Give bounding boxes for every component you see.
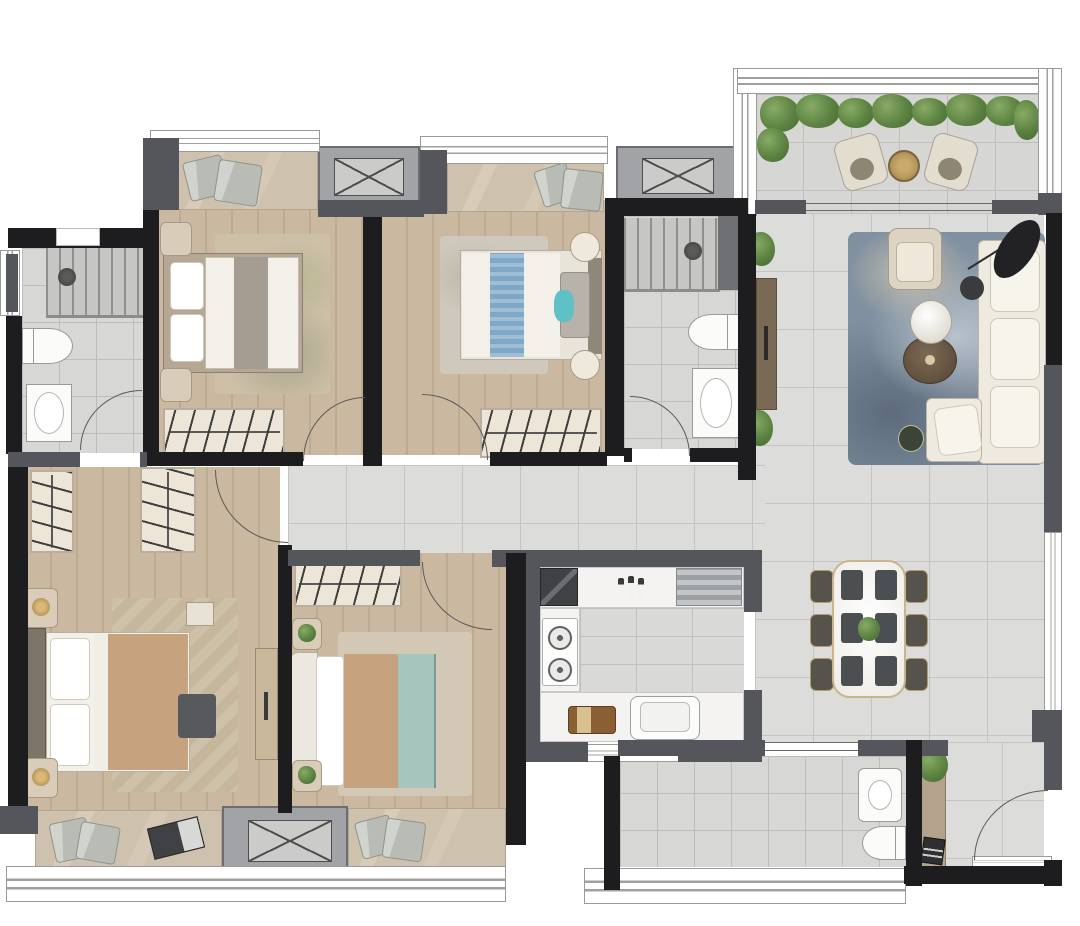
balcony-window-right [1038,68,1062,195]
kitchen-sink-basin [640,702,690,732]
kitchen-floor [580,608,744,692]
wall [1046,213,1062,365]
ac-platform-top-2-mark [642,158,714,194]
balcony-round-table [888,150,920,182]
nightstand-lamp [32,598,50,616]
wall [0,806,38,834]
vanity-bowl [868,780,892,810]
wall [143,210,159,456]
dining-centerpiece-plant [858,617,880,641]
wall [906,740,922,886]
ac-platform-top-1-mark [334,158,404,196]
master-bed-duvet [94,634,188,770]
bed-top-middle-blue-runner [490,253,524,357]
bottle [638,578,644,600]
wall [363,217,382,466]
window-cushion [560,168,604,212]
bed-bottom-duvet-teal [398,654,436,788]
wall [744,690,762,745]
wall [618,740,765,756]
wall [288,550,420,566]
master-wardrobe-b [140,467,196,553]
wall [526,550,540,745]
wall [604,756,620,890]
balcony-sliding-door [806,203,992,211]
round-nightstand-a [570,232,600,262]
master-bed-pillow-1 [50,638,90,700]
wall [6,316,22,454]
bed-top-left-pillow-2 [170,314,204,362]
shower-area-mid-bath [624,218,720,289]
master-bed-pillow-2 [50,704,90,766]
toilet-bowl [862,826,896,860]
balcony-window-top [737,68,1062,94]
balcony-plant [872,94,914,128]
sofa-cushion-2 [990,318,1040,380]
dining-chair [810,570,834,603]
ac-platform-bottom-mark [248,820,332,862]
burner-icon [548,658,572,682]
placemat [841,570,863,600]
bottle [618,578,624,600]
nightstand-lamp [32,768,50,786]
toilet-bowl [688,314,728,350]
bottle [628,576,634,600]
coffee-table-white [910,300,952,344]
bed-bottom-duvet-tan [344,654,398,788]
washbasin-bowl [34,392,64,434]
side-table [898,425,924,452]
dining-side-window [1044,532,1062,712]
bed-top-middle-teal-pillow [554,290,574,322]
placemat [875,570,897,600]
wall [690,448,748,462]
chaise-pillow [933,403,983,457]
nightstand-plant [298,624,316,642]
bath-threshold [56,228,100,246]
wall [490,452,607,466]
dining-chair [810,658,834,691]
wall [1044,742,1062,790]
placemat [841,656,863,686]
nightstand-top-left-a [160,222,192,256]
coffee-table-deco [925,355,935,365]
sofa-cushion-3 [990,386,1040,448]
wall [143,138,179,210]
master-bathroom-window-frame [6,254,18,312]
bottom-window-band [6,866,506,902]
wall [605,198,748,216]
wall [506,553,526,845]
wardrobe-bottom-middle [294,560,402,607]
washbasin-bowl [700,378,732,428]
bed-top-left-pillow-1 [170,262,204,310]
floor-plan [0,0,1080,926]
floor-lamp-base [960,276,984,300]
wall [8,452,80,467]
wall [147,452,303,466]
window-cushion [213,159,263,207]
wall [1044,365,1062,532]
tv-cabinet-handle [764,326,768,360]
shower-head-icon [58,268,76,286]
burner-icon [548,626,572,650]
shower-glass [46,315,146,318]
wall [1032,710,1062,742]
dresser-handle [264,692,268,720]
dining-chair [904,614,928,647]
window-cushion [381,817,426,862]
balcony-plant [946,94,988,126]
armchair-seat [896,242,934,282]
wall [318,200,424,217]
cutting-board [568,706,616,734]
kitchen-dark-module [540,568,578,606]
stainless-appliance [676,568,742,606]
balcony-door-wall-left [755,200,806,214]
placemat [875,656,897,686]
wardrobe-top-middle [480,408,602,458]
wardrobe-top-left [163,408,285,455]
wall [744,550,762,612]
wall [904,866,1062,884]
nightstand-plant [298,766,316,784]
wall [8,467,28,812]
window-cushion [75,821,121,865]
wall [738,214,756,480]
master-wardrobe-a [30,470,74,553]
balcony-plant [1014,100,1040,140]
wall [140,452,147,467]
wall [605,198,624,456]
bedroom-top-middle-window [420,136,608,164]
balcony-plant [912,98,948,126]
bedside-deco [186,602,214,626]
guest-bathroom-window-band [584,868,906,904]
bed-top-left-runner [234,257,268,369]
balcony-door-wall-right [992,200,1040,214]
round-nightstand-b [570,350,600,380]
doormat [920,837,945,866]
wall [278,545,292,813]
corridor-floor [288,465,765,553]
wall [420,150,447,214]
nightstand-top-left-b [160,368,192,402]
dining-chair [810,614,834,647]
guest-bathroom-sliding-door [765,742,858,751]
wall [526,742,588,762]
dining-chair [904,570,928,603]
balcony-plant [838,98,874,128]
dining-chair [904,658,928,691]
bed-end-bench [178,694,216,738]
wall [858,740,948,756]
wall [1038,193,1062,215]
shower-glass [624,289,720,292]
bed-top-middle-headboard [588,258,602,354]
balcony-plant [796,94,840,128]
balcony-plant [757,128,789,162]
shower-head-icon [684,242,702,260]
balcony-plant [760,96,800,132]
